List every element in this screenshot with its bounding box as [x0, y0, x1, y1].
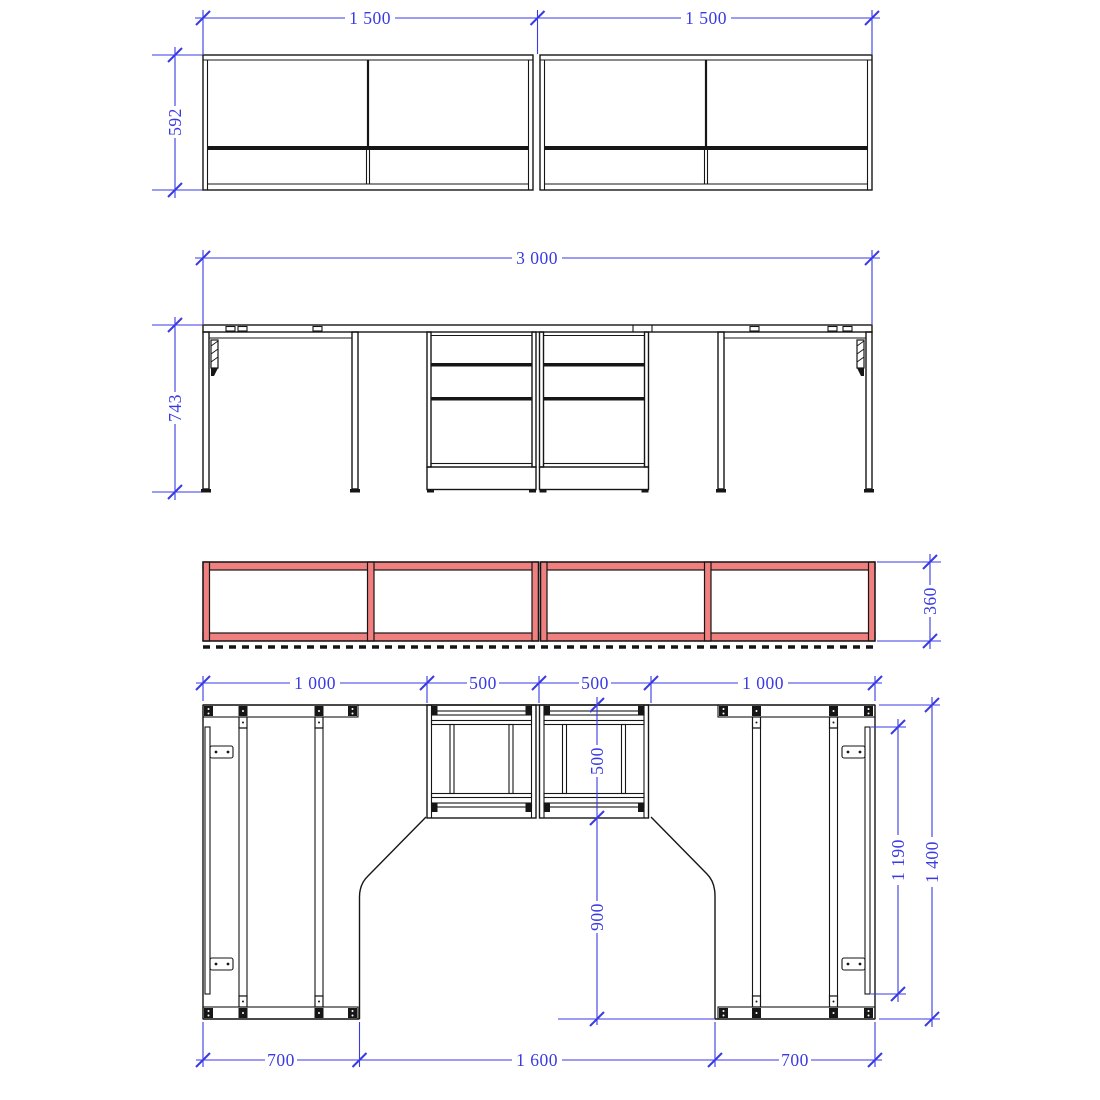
side-rail: [865, 727, 870, 994]
plan-pedestal-left: [427, 705, 536, 818]
corner-bracket: [211, 340, 218, 368]
desk-left: [201, 332, 360, 493]
dim-plan-bottom: 700 1 600 700: [196, 1022, 882, 1070]
pedestal-left: [427, 332, 536, 493]
dim-label-cabinet-width-right: 1 500: [685, 8, 727, 28]
shelf-unit-right: [541, 562, 876, 641]
cabinet-left: [203, 55, 533, 190]
dim-label-plan-top-left: 1 000: [294, 673, 336, 693]
plan-view: 1 000 500 500 1 000: [196, 673, 942, 1070]
dim-plan-right: 1 190 1 400: [871, 697, 942, 1027]
desk-elevation-view: 3 000 743: [152, 248, 880, 500]
cabinet-right: [540, 55, 872, 190]
plan-frame-left: [203, 705, 358, 1019]
dim-label-cabinet-height: 592: [165, 108, 185, 136]
corner-bracket: [857, 340, 864, 368]
dim-label-bottom-middle: 1 600: [516, 1050, 558, 1070]
dim-label-total-depth: 1 400: [922, 841, 942, 883]
dim-cabinet-widths: 1 500 1 500: [195, 8, 880, 54]
side-rail: [205, 727, 210, 994]
dim-label-leg-clearance: 900: [587, 903, 607, 931]
dim-label-desk-height: 743: [165, 394, 185, 422]
desktop-strip: [203, 325, 872, 332]
technical-drawing: 1 500 1 500 592: [0, 0, 1100, 1100]
dim-label-plan-top-mid-right: 500: [581, 673, 609, 693]
dim-label-plan-top-mid-left: 500: [469, 673, 497, 693]
dim-label-plan-top-right: 1 000: [742, 673, 784, 693]
dim-plan-depths: 500 900: [558, 697, 715, 1026]
dim-label-side-rail-length: 1 190: [888, 839, 908, 881]
dim-label-bottom-right: 700: [781, 1050, 809, 1070]
pedestal-right: [540, 332, 649, 493]
drawing-page: 1 500 1 500 592: [0, 0, 1100, 1100]
dim-label-bottom-left: 700: [267, 1050, 295, 1070]
dim-desk-height: 743: [152, 317, 208, 500]
desk-right: [716, 332, 874, 493]
cabinet-elevation-view: 1 500 1 500 592: [152, 8, 880, 198]
dim-desk-total-width: 3 000: [195, 248, 880, 324]
dim-label-pedestal-depth: 500: [587, 747, 607, 775]
dim-label-shelf-height: 360: [920, 587, 940, 615]
dim-label-desk-total-width: 3 000: [516, 248, 558, 268]
dim-cabinet-height: 592: [152, 47, 208, 198]
dim-label-cabinet-width-left: 1 500: [349, 8, 391, 28]
plan-frame-right: [718, 705, 875, 1019]
dim-plan-top: 1 000 500 500 1 000: [196, 673, 882, 703]
dim-shelf-height: 360: [877, 554, 941, 649]
shelf-elevation-view: 360: [203, 554, 941, 649]
shelf-unit-left: [203, 562, 539, 641]
